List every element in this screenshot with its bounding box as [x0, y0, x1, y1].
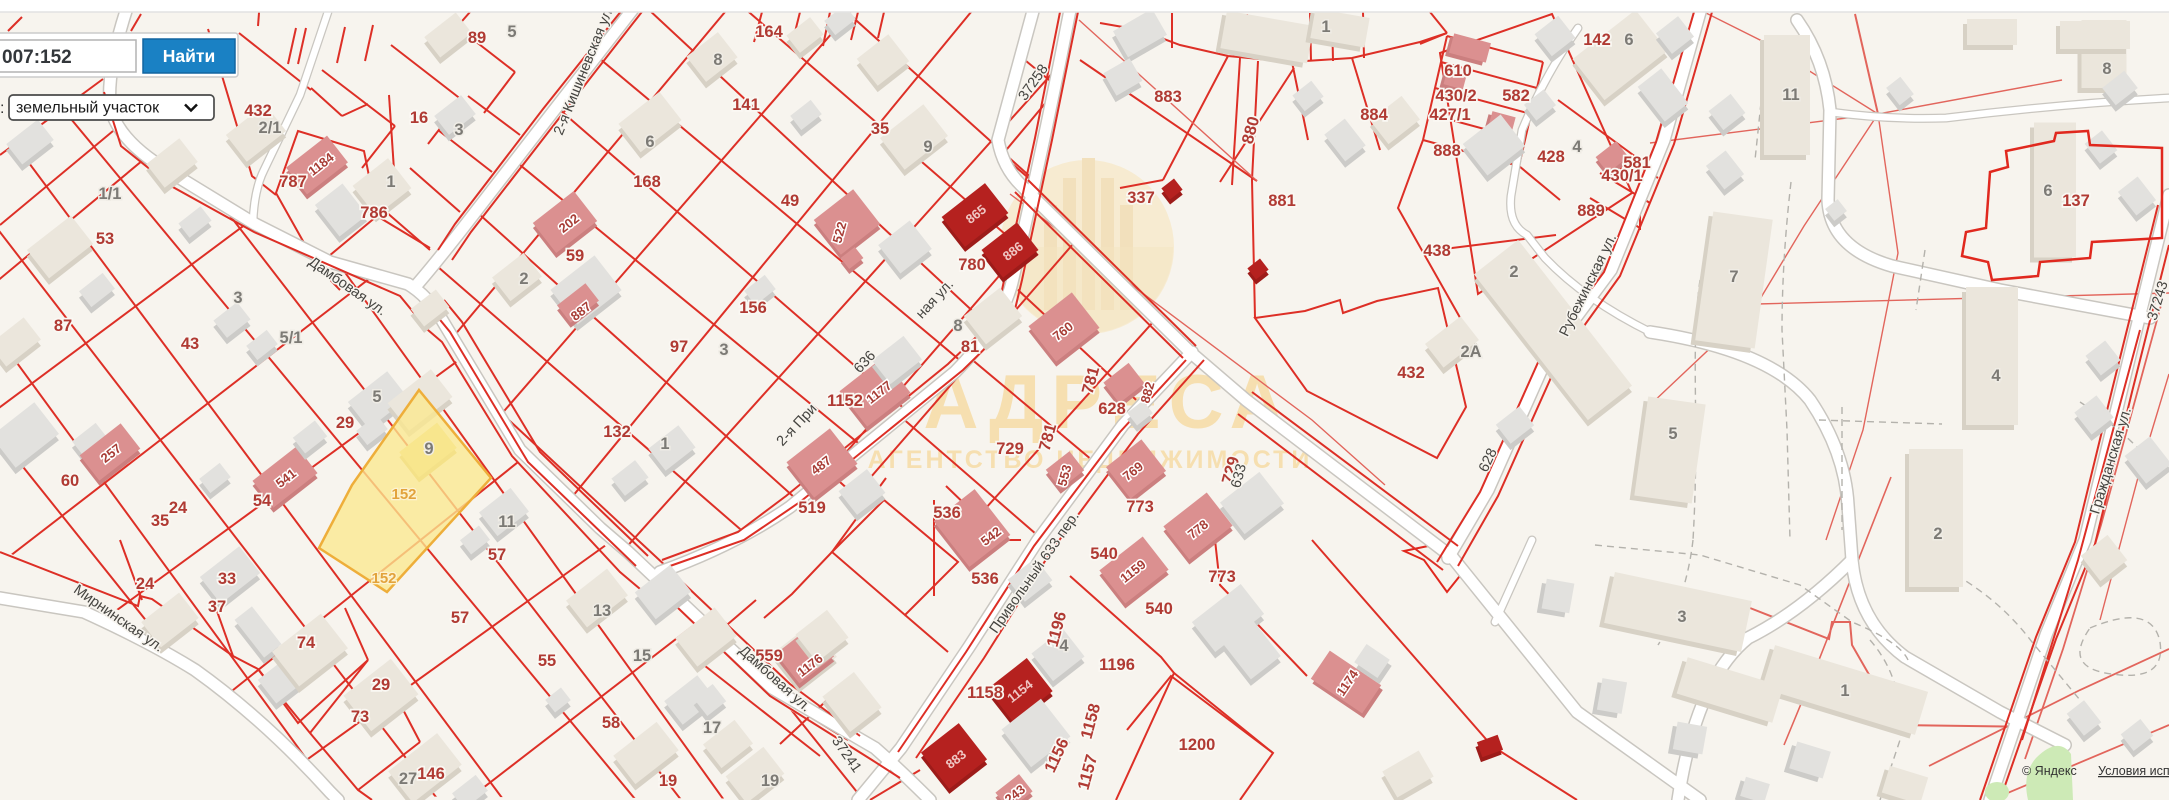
svg-text:5/1: 5/1: [280, 329, 303, 347]
svg-text:1158: 1158: [967, 684, 1003, 702]
svg-text:87: 87: [54, 317, 72, 335]
svg-text:428: 428: [1537, 148, 1565, 166]
svg-text:7: 7: [1729, 268, 1738, 286]
svg-text:337: 337: [1127, 189, 1155, 207]
svg-text:74: 74: [297, 634, 316, 652]
svg-text:8: 8: [2102, 60, 2111, 78]
svg-text:15: 15: [633, 647, 651, 665]
svg-text:430/2: 430/2: [1435, 87, 1476, 105]
svg-text:1152: 1152: [827, 392, 863, 410]
svg-text:Условия исп: Условия исп: [2098, 764, 2169, 778]
svg-text:152: 152: [371, 570, 396, 587]
svg-text:4: 4: [1059, 637, 1069, 655]
svg-text:29: 29: [372, 676, 390, 694]
svg-text:786: 786: [360, 204, 388, 222]
svg-text:29: 29: [336, 414, 354, 432]
svg-text:152: 152: [391, 486, 416, 503]
svg-text:35: 35: [871, 120, 889, 138]
svg-text:6: 6: [2043, 182, 2052, 200]
svg-text:729: 729: [996, 440, 1024, 458]
svg-text:73: 73: [351, 708, 369, 726]
svg-text:6: 6: [1624, 31, 1633, 49]
svg-text:427/1: 427/1: [1429, 106, 1470, 124]
svg-text:438: 438: [1423, 242, 1451, 260]
svg-text:2/1: 2/1: [259, 119, 282, 137]
svg-text:37: 37: [208, 598, 226, 616]
svg-text:1200: 1200: [1179, 736, 1216, 754]
svg-text:© Яндекс: © Яндекс: [2022, 764, 2077, 778]
svg-text:5: 5: [372, 388, 381, 406]
svg-text:007:152: 007:152: [2, 47, 72, 68]
svg-text:884: 884: [1360, 106, 1388, 124]
svg-text:49: 49: [781, 192, 799, 210]
svg-text:13: 13: [593, 602, 611, 620]
svg-text:3: 3: [1677, 608, 1686, 626]
svg-text:54: 54: [253, 492, 272, 510]
svg-text:156: 156: [739, 299, 767, 317]
svg-text:11: 11: [1782, 86, 1799, 104]
svg-text:628: 628: [1098, 400, 1126, 418]
svg-text:3: 3: [719, 341, 728, 359]
svg-text:9: 9: [424, 440, 433, 458]
svg-text:89: 89: [468, 29, 486, 47]
svg-text:81: 81: [961, 338, 979, 356]
svg-text:1/1: 1/1: [99, 185, 122, 203]
svg-text:1: 1: [386, 173, 395, 191]
svg-text:536: 536: [971, 570, 999, 588]
svg-text:2: 2: [519, 270, 528, 288]
svg-text:430/1: 430/1: [1601, 167, 1642, 185]
svg-text:53: 53: [96, 230, 114, 248]
svg-text:35: 35: [151, 512, 169, 530]
svg-text:Найти: Найти: [163, 46, 215, 66]
svg-text:773: 773: [1208, 568, 1236, 586]
svg-text:142: 142: [1583, 31, 1611, 49]
svg-text:6: 6: [645, 133, 654, 151]
svg-text:земельный участок: земельный участок: [16, 100, 160, 117]
svg-text:540: 540: [1090, 545, 1118, 563]
svg-text:610: 610: [1444, 62, 1472, 80]
svg-text:4: 4: [1572, 138, 1582, 156]
svg-text:8: 8: [713, 51, 722, 69]
svg-text:59: 59: [566, 247, 584, 265]
svg-text:137: 137: [2062, 192, 2090, 210]
svg-text:19: 19: [761, 772, 779, 790]
svg-text:146: 146: [417, 765, 445, 783]
svg-text:58: 58: [602, 714, 620, 732]
svg-text:24: 24: [136, 575, 155, 593]
svg-text:889: 889: [1577, 202, 1605, 220]
svg-text:164: 164: [755, 23, 783, 41]
svg-text:582: 582: [1502, 87, 1530, 105]
svg-text:3: 3: [454, 121, 463, 139]
svg-text:33: 33: [218, 570, 236, 588]
svg-text:4: 4: [1991, 367, 2001, 385]
svg-text:432: 432: [1397, 364, 1425, 382]
svg-text:3: 3: [233, 289, 242, 307]
svg-text:17: 17: [703, 719, 721, 737]
svg-text:2: 2: [1509, 263, 1518, 281]
svg-text:432: 432: [244, 102, 272, 120]
svg-text:43: 43: [181, 335, 199, 353]
svg-text:8: 8: [953, 317, 962, 335]
svg-text:168: 168: [633, 173, 661, 191]
svg-text:57: 57: [451, 609, 469, 627]
svg-text:19: 19: [659, 772, 677, 790]
svg-text:27: 27: [399, 770, 417, 788]
svg-text:2: 2: [1933, 525, 1942, 543]
svg-text:780: 780: [958, 256, 986, 274]
svg-text:16: 16: [410, 109, 428, 127]
svg-text:519: 519: [798, 499, 826, 517]
svg-text:881: 881: [1268, 192, 1296, 210]
svg-text:24: 24: [169, 499, 188, 517]
svg-text:55: 55: [538, 652, 556, 670]
svg-text:60: 60: [61, 472, 79, 490]
svg-text:57: 57: [488, 546, 506, 564]
svg-text:888: 888: [1433, 142, 1461, 160]
svg-text:132: 132: [603, 423, 631, 441]
svg-text:1: 1: [1840, 682, 1849, 700]
svg-text:773: 773: [1126, 498, 1154, 516]
svg-text:2А: 2А: [1460, 343, 1481, 361]
svg-text:141: 141: [732, 96, 760, 114]
svg-text:9: 9: [923, 138, 932, 156]
svg-text:540: 540: [1145, 600, 1173, 618]
svg-text:883: 883: [1154, 88, 1182, 106]
svg-text:97: 97: [670, 338, 688, 356]
svg-text:1196: 1196: [1099, 656, 1135, 674]
svg-text:1: 1: [1321, 18, 1330, 36]
svg-text::: :: [0, 100, 4, 117]
svg-text:11: 11: [498, 513, 515, 531]
svg-text:5: 5: [1668, 425, 1677, 443]
svg-text:536: 536: [933, 504, 961, 522]
svg-text:5: 5: [507, 23, 516, 41]
svg-text:1: 1: [660, 435, 669, 453]
svg-text:787: 787: [279, 173, 307, 191]
